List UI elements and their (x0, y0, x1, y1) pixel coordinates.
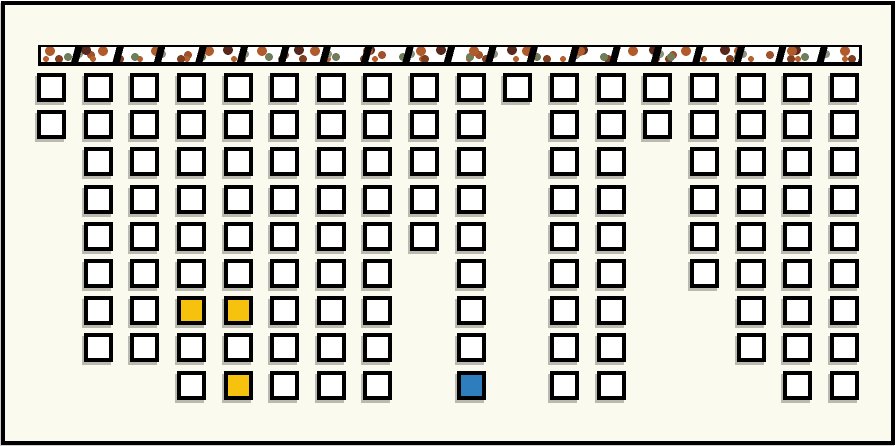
grid-cell[interactable] (550, 110, 579, 139)
canvas-frame (1, 1, 895, 445)
grid-cell[interactable] (830, 222, 859, 251)
grid-cell[interactable] (783, 147, 812, 176)
grid-cell[interactable] (363, 185, 392, 214)
grid-cell[interactable] (270, 110, 299, 139)
grid-cell[interactable] (783, 110, 812, 139)
grid-cell[interactable] (270, 185, 299, 214)
grid-cell[interactable] (363, 259, 392, 288)
grid-cell[interactable] (643, 110, 672, 139)
grid-cell[interactable] (783, 185, 812, 214)
grid-cell[interactable] (84, 296, 113, 325)
grid-cell[interactable] (130, 110, 159, 139)
grid-cell[interactable] (550, 333, 579, 362)
grid-cell[interactable] (317, 296, 346, 325)
grid-cell[interactable] (363, 371, 392, 400)
grid-cell[interactable] (224, 333, 253, 362)
grid-cell[interactable] (317, 73, 346, 102)
grid-cell[interactable] (130, 185, 159, 214)
texture-strip (38, 45, 862, 66)
grid-cell[interactable] (363, 73, 392, 102)
grid-cell[interactable] (317, 185, 346, 214)
grid-cell[interactable] (597, 147, 626, 176)
grid-cell[interactable] (597, 73, 626, 102)
grid-cell[interactable] (550, 222, 579, 251)
grid-cell[interactable] (783, 222, 812, 251)
grid-cell[interactable] (737, 259, 766, 288)
grid-cell[interactable] (830, 110, 859, 139)
grid-cell[interactable] (690, 110, 719, 139)
grid-cell[interactable] (84, 333, 113, 362)
grid-cell[interactable] (830, 147, 859, 176)
grid-cell[interactable] (410, 147, 439, 176)
grid-cell[interactable] (690, 222, 719, 251)
grid-cell-highlight-yellow[interactable] (177, 296, 206, 325)
diagram-canvas (0, 0, 896, 446)
grid-cell[interactable] (363, 333, 392, 362)
grid-cell[interactable] (130, 259, 159, 288)
grid-cell[interactable] (84, 73, 113, 102)
grid-cell[interactable] (597, 371, 626, 400)
grid-cell[interactable] (317, 110, 346, 139)
grid-cell[interactable] (783, 73, 812, 102)
grid-cell[interactable] (224, 259, 253, 288)
grid-cell[interactable] (737, 185, 766, 214)
grid-cell[interactable] (130, 147, 159, 176)
grid-cell[interactable] (737, 222, 766, 251)
grid-cell[interactable] (690, 73, 719, 102)
grid-cell[interactable] (457, 73, 486, 102)
grid-cell[interactable] (457, 147, 486, 176)
grid-cell[interactable] (457, 222, 486, 251)
grid-cell[interactable] (410, 110, 439, 139)
grid-cell[interactable] (130, 333, 159, 362)
grid-cell[interactable] (177, 147, 206, 176)
grid-cell[interactable] (783, 333, 812, 362)
grid-cell[interactable] (177, 110, 206, 139)
grid-cell[interactable] (363, 147, 392, 176)
grid-cell[interactable] (550, 185, 579, 214)
grid-cell[interactable] (737, 110, 766, 139)
grid-cell[interactable] (317, 259, 346, 288)
grid-cell[interactable] (830, 371, 859, 400)
grid-cell[interactable] (84, 259, 113, 288)
grid-cell[interactable] (737, 73, 766, 102)
grid-cell[interactable] (270, 296, 299, 325)
grid-cell[interactable] (550, 296, 579, 325)
grid-cell[interactable] (317, 147, 346, 176)
grid-cell[interactable] (130, 296, 159, 325)
grid-cell[interactable] (177, 222, 206, 251)
grid-cell-highlight-yellow[interactable] (224, 371, 253, 400)
grid-cell[interactable] (830, 296, 859, 325)
grid-cell[interactable] (177, 259, 206, 288)
grid-cell[interactable] (737, 296, 766, 325)
grid-cell[interactable] (830, 333, 859, 362)
grid-cell[interactable] (690, 259, 719, 288)
grid-cell[interactable] (550, 73, 579, 102)
grid-cell[interactable] (84, 185, 113, 214)
grid-cell[interactable] (270, 73, 299, 102)
grid-cell-highlight-yellow[interactable] (224, 296, 253, 325)
grid-cell[interactable] (457, 333, 486, 362)
grid-cell[interactable] (130, 73, 159, 102)
grid-cell[interactable] (224, 110, 253, 139)
grid-cell[interactable] (783, 296, 812, 325)
grid-cell[interactable] (270, 222, 299, 251)
grid-cell[interactable] (177, 371, 206, 400)
grid-cell[interactable] (830, 73, 859, 102)
grid-cell[interactable] (270, 147, 299, 176)
grid-cell[interactable] (177, 185, 206, 214)
grid-cell[interactable] (177, 73, 206, 102)
grid-cell[interactable] (317, 222, 346, 251)
grid-cell[interactable] (550, 371, 579, 400)
grid-cell[interactable] (597, 110, 626, 139)
grid-cell[interactable] (550, 259, 579, 288)
grid-cell[interactable] (270, 333, 299, 362)
grid-cell[interactable] (783, 259, 812, 288)
grid-cell[interactable] (37, 110, 66, 139)
grid-cell[interactable] (130, 222, 159, 251)
grid-cell[interactable] (457, 296, 486, 325)
grid-cell[interactable] (410, 73, 439, 102)
square-grid (37, 73, 859, 400)
grid-cell[interactable] (457, 185, 486, 214)
grid-cell[interactable] (457, 110, 486, 139)
grid-cell[interactable] (737, 147, 766, 176)
grid-cell[interactable] (363, 296, 392, 325)
grid-cell[interactable] (270, 259, 299, 288)
grid-cell[interactable] (224, 73, 253, 102)
grid-cell[interactable] (84, 110, 113, 139)
grid-cell[interactable] (410, 185, 439, 214)
grid-cell[interactable] (224, 147, 253, 176)
grid-cell[interactable] (597, 222, 626, 251)
grid-cell[interactable] (363, 222, 392, 251)
grid-cell[interactable] (224, 185, 253, 214)
grid-cell[interactable] (597, 259, 626, 288)
grid-cell[interactable] (410, 222, 439, 251)
grid-cell[interactable] (503, 73, 532, 102)
grid-cell[interactable] (270, 371, 299, 400)
grid-cell[interactable] (317, 371, 346, 400)
grid-cell[interactable] (737, 333, 766, 362)
grid-cell-highlight-blue[interactable] (457, 371, 486, 400)
grid-cell[interactable] (690, 147, 719, 176)
grid-cell[interactable] (363, 110, 392, 139)
grid-cell[interactable] (37, 73, 66, 102)
grid-cell[interactable] (84, 222, 113, 251)
grid-cell[interactable] (84, 147, 113, 176)
grid-cell[interactable] (550, 147, 579, 176)
grid-cell[interactable] (177, 333, 206, 362)
grid-cell[interactable] (597, 333, 626, 362)
grid-cell[interactable] (317, 333, 346, 362)
grid-cell[interactable] (224, 222, 253, 251)
grid-cell[interactable] (597, 296, 626, 325)
grid-cell[interactable] (457, 259, 486, 288)
grid-cell[interactable] (830, 259, 859, 288)
grid-cell[interactable] (783, 371, 812, 400)
grid-cell[interactable] (597, 185, 626, 214)
grid-cell[interactable] (643, 73, 672, 102)
grid-cell[interactable] (830, 185, 859, 214)
grid-cell[interactable] (690, 185, 719, 214)
